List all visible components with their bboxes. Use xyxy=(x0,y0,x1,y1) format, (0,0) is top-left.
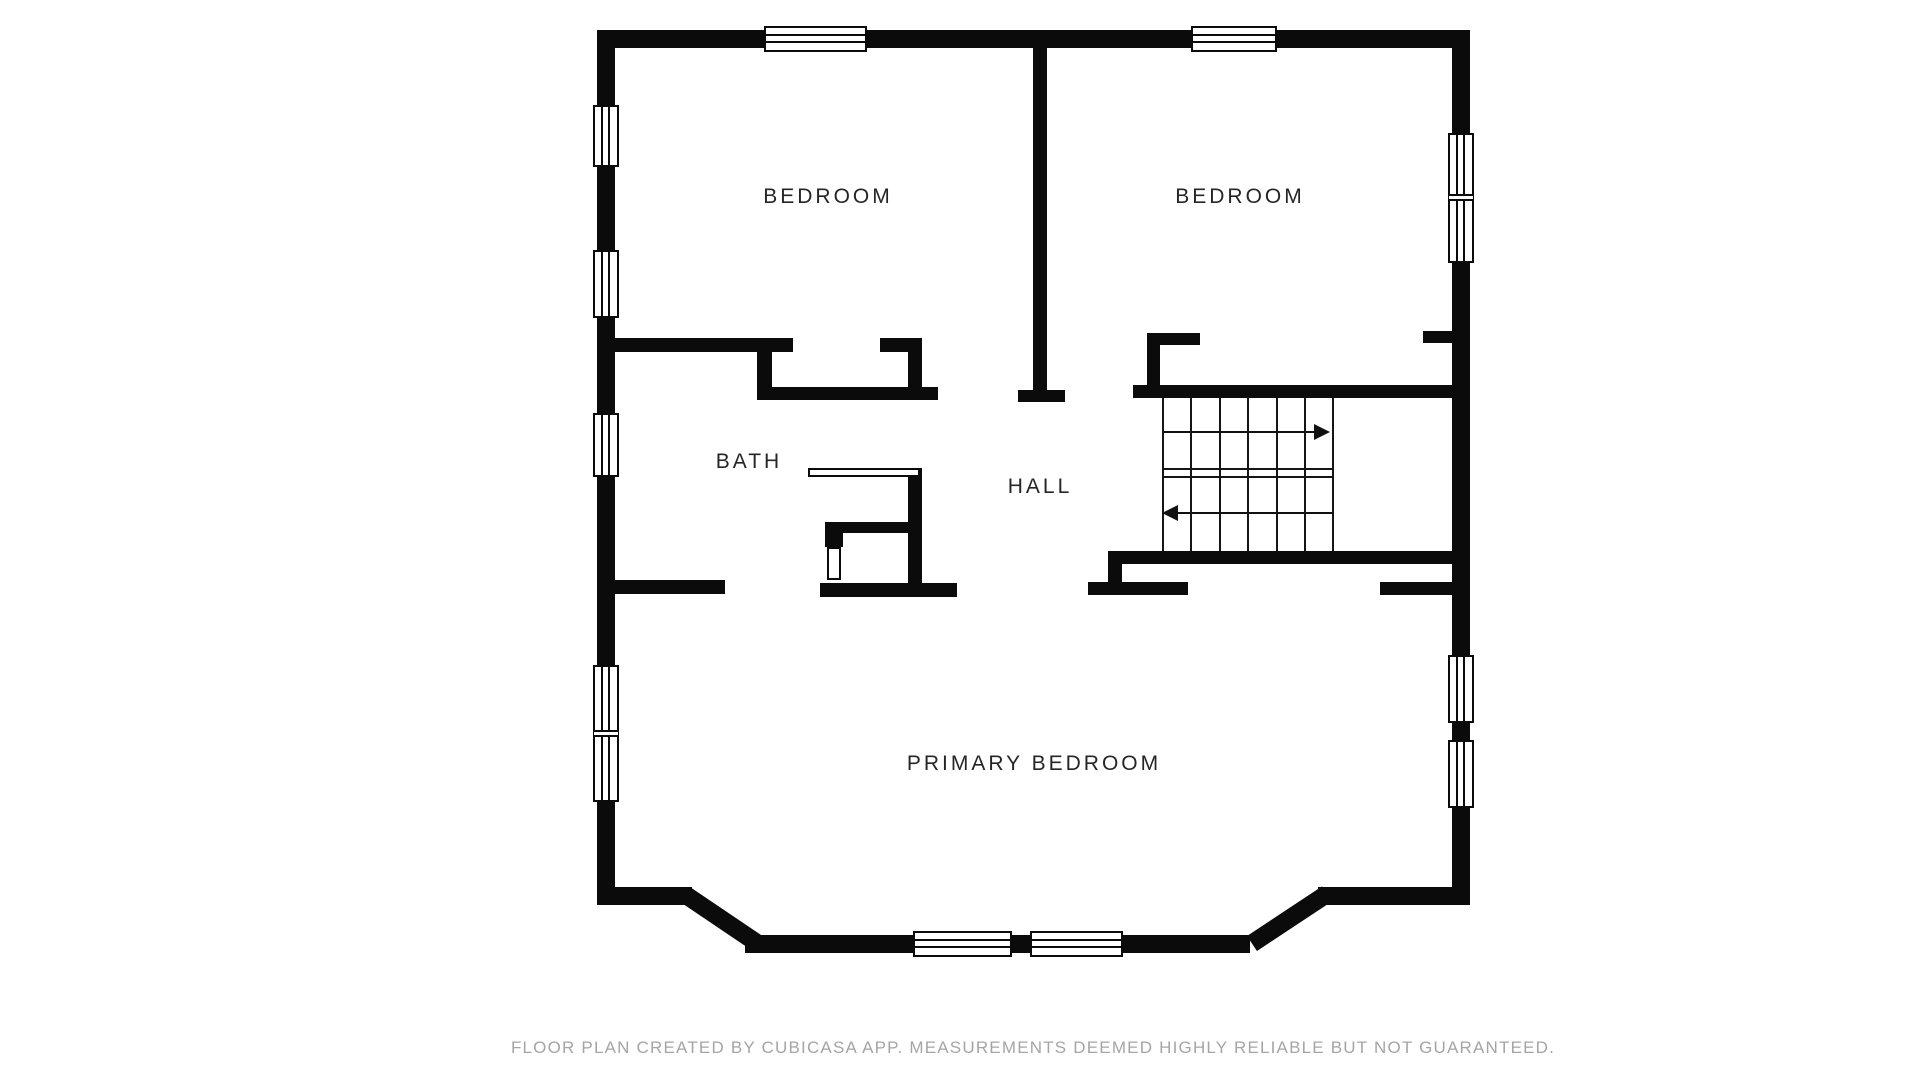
stairs-up-arrow-line xyxy=(1164,431,1316,433)
footer-disclaimer: FLOOR PLAN CREATED BY CUBICASA APP. MEAS… xyxy=(511,1038,1555,1058)
outer-wall-bottom-right xyxy=(1318,887,1470,905)
wall-hall-bottom-middle xyxy=(1088,582,1188,595)
outer-wall-bay-chamfer-right xyxy=(1247,886,1332,951)
wall-bedroom-divider xyxy=(1033,48,1047,390)
wall-bedroom-divider-cap xyxy=(1018,390,1065,402)
wall-closet1-top-stub xyxy=(880,338,922,352)
stair-landing-edge-line xyxy=(1332,397,1334,551)
stair-tread-line xyxy=(1219,397,1221,551)
window-section-divider xyxy=(594,730,618,737)
wall-bath-closet-jamb xyxy=(825,522,843,547)
floor-plan-page: BEDROOM BEDROOM BATH HALL PRIMARY BEDROO… xyxy=(0,0,1920,1080)
window-top-bedroom2 xyxy=(1191,26,1277,52)
outer-wall-bay-chamfer-left xyxy=(680,887,763,951)
bath-closet-door-leaf xyxy=(827,547,841,580)
room-label-bedroom-2: BEDROOM xyxy=(1175,185,1305,209)
outer-wall-top xyxy=(597,30,1470,48)
stair-tread-line xyxy=(1162,397,1164,551)
stair-winder-line xyxy=(1162,468,1334,470)
stair-tread-line xyxy=(1276,397,1278,551)
wall-bath-bottom-right xyxy=(820,583,957,597)
wall-bedroom2-jamb-top xyxy=(1147,333,1200,345)
window-section-divider xyxy=(1449,194,1473,201)
window-right-bedroom2-double xyxy=(1448,133,1474,263)
stair-tread-line xyxy=(1247,397,1249,551)
room-label-bath: BATH xyxy=(716,450,782,474)
window-left-primary-double xyxy=(593,665,619,802)
bath-door-leaf xyxy=(808,468,920,477)
stair-tread-line xyxy=(1304,397,1306,551)
wall-closet1-left xyxy=(757,352,772,400)
wall-bedroom1-bottom xyxy=(615,338,793,352)
window-top-bedroom1 xyxy=(764,26,867,52)
stair-winder-line xyxy=(1162,476,1334,478)
window-left-upper-1 xyxy=(593,105,619,167)
window-bottom-primary-1 xyxy=(913,931,1012,957)
window-right-primary-1 xyxy=(1448,655,1474,723)
wall-stairs-top xyxy=(1133,385,1452,398)
wall-hall-bottom-right-stub xyxy=(1380,582,1452,595)
window-left-bath xyxy=(593,413,619,477)
wall-bath-bottom-left xyxy=(615,580,725,594)
stairs-up-arrow-icon xyxy=(1314,424,1330,440)
stairs-down-arrow-icon xyxy=(1162,505,1178,521)
wall-bedroom2-right-stub xyxy=(1423,331,1452,343)
window-bottom-primary-2 xyxy=(1030,931,1123,957)
stair-tread-line xyxy=(1190,397,1192,551)
stairs-down-arrow-line xyxy=(1178,512,1332,514)
window-right-primary-2 xyxy=(1448,740,1474,808)
room-label-hall: HALL xyxy=(1008,475,1073,499)
room-label-bedroom-1: BEDROOM xyxy=(763,185,893,209)
room-label-primary-bedroom: PRIMARY BEDROOM xyxy=(907,752,1161,776)
window-left-upper-2 xyxy=(593,250,619,318)
wall-closet1-right xyxy=(908,352,922,392)
outer-wall-bottom-left xyxy=(597,887,692,905)
wall-stairs-bottom xyxy=(1110,551,1452,564)
